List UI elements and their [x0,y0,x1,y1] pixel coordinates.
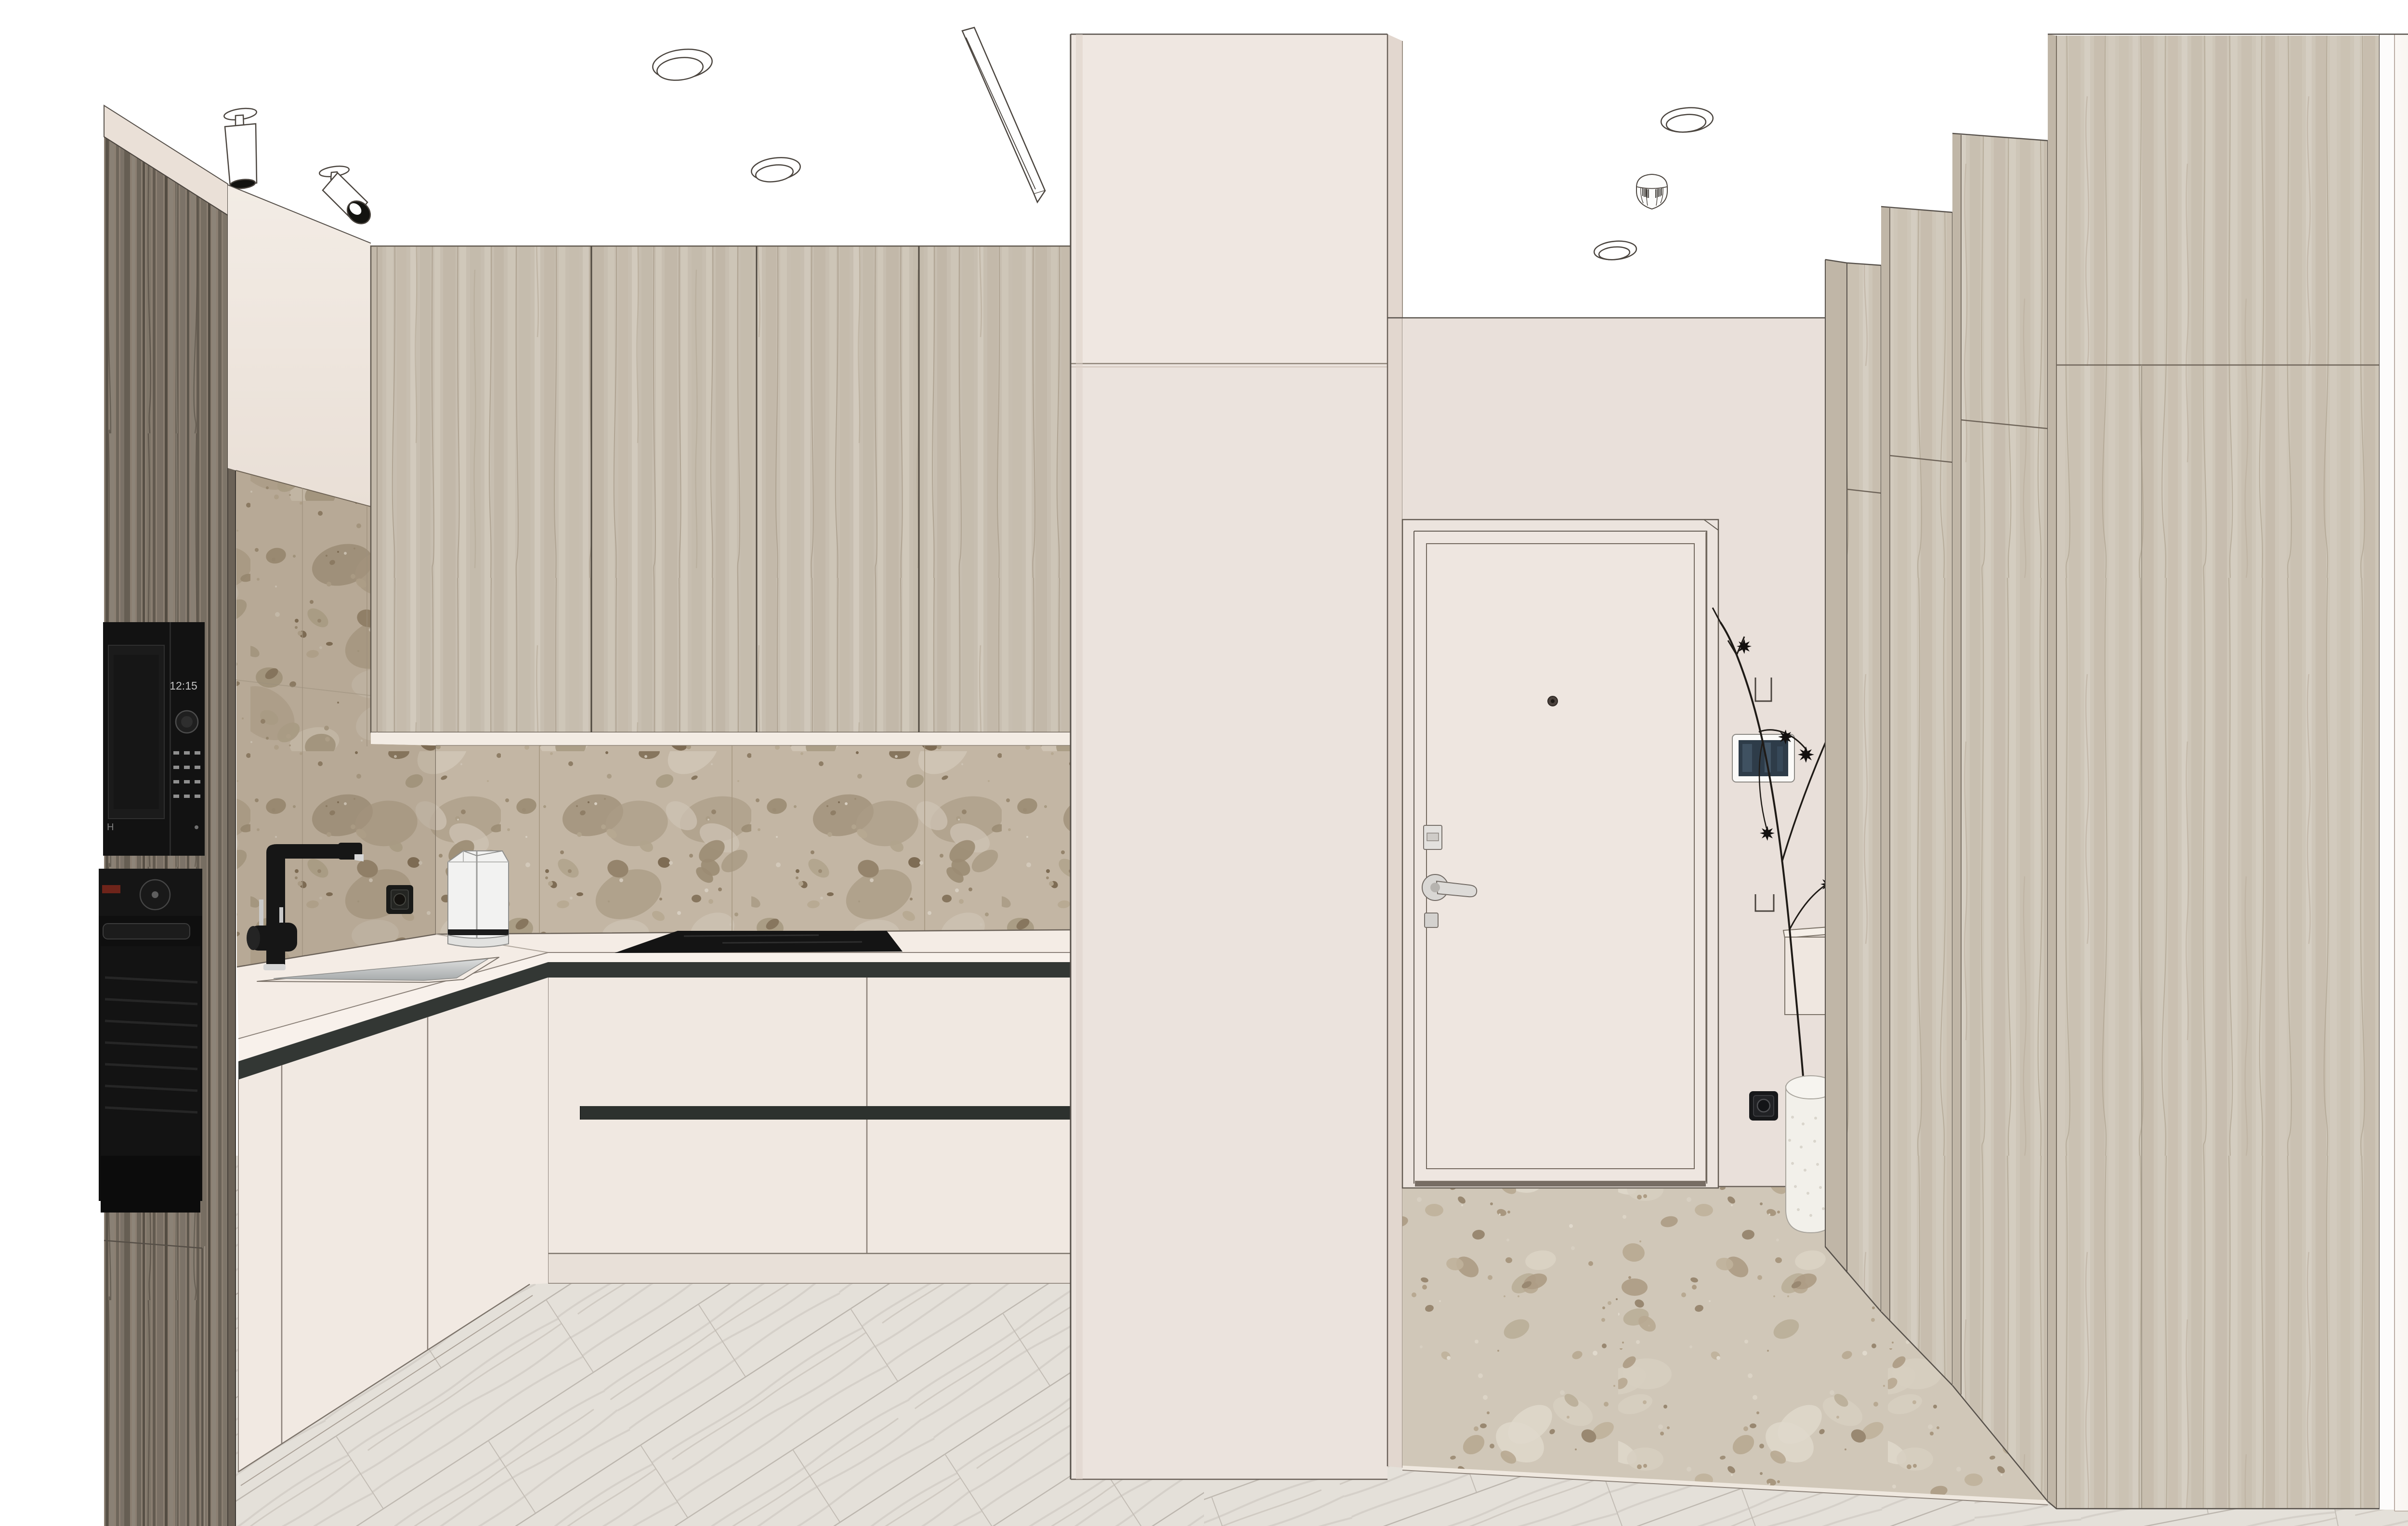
svg-text:H: H [107,822,114,833]
svg-text:12:15: 12:15 [170,679,197,692]
